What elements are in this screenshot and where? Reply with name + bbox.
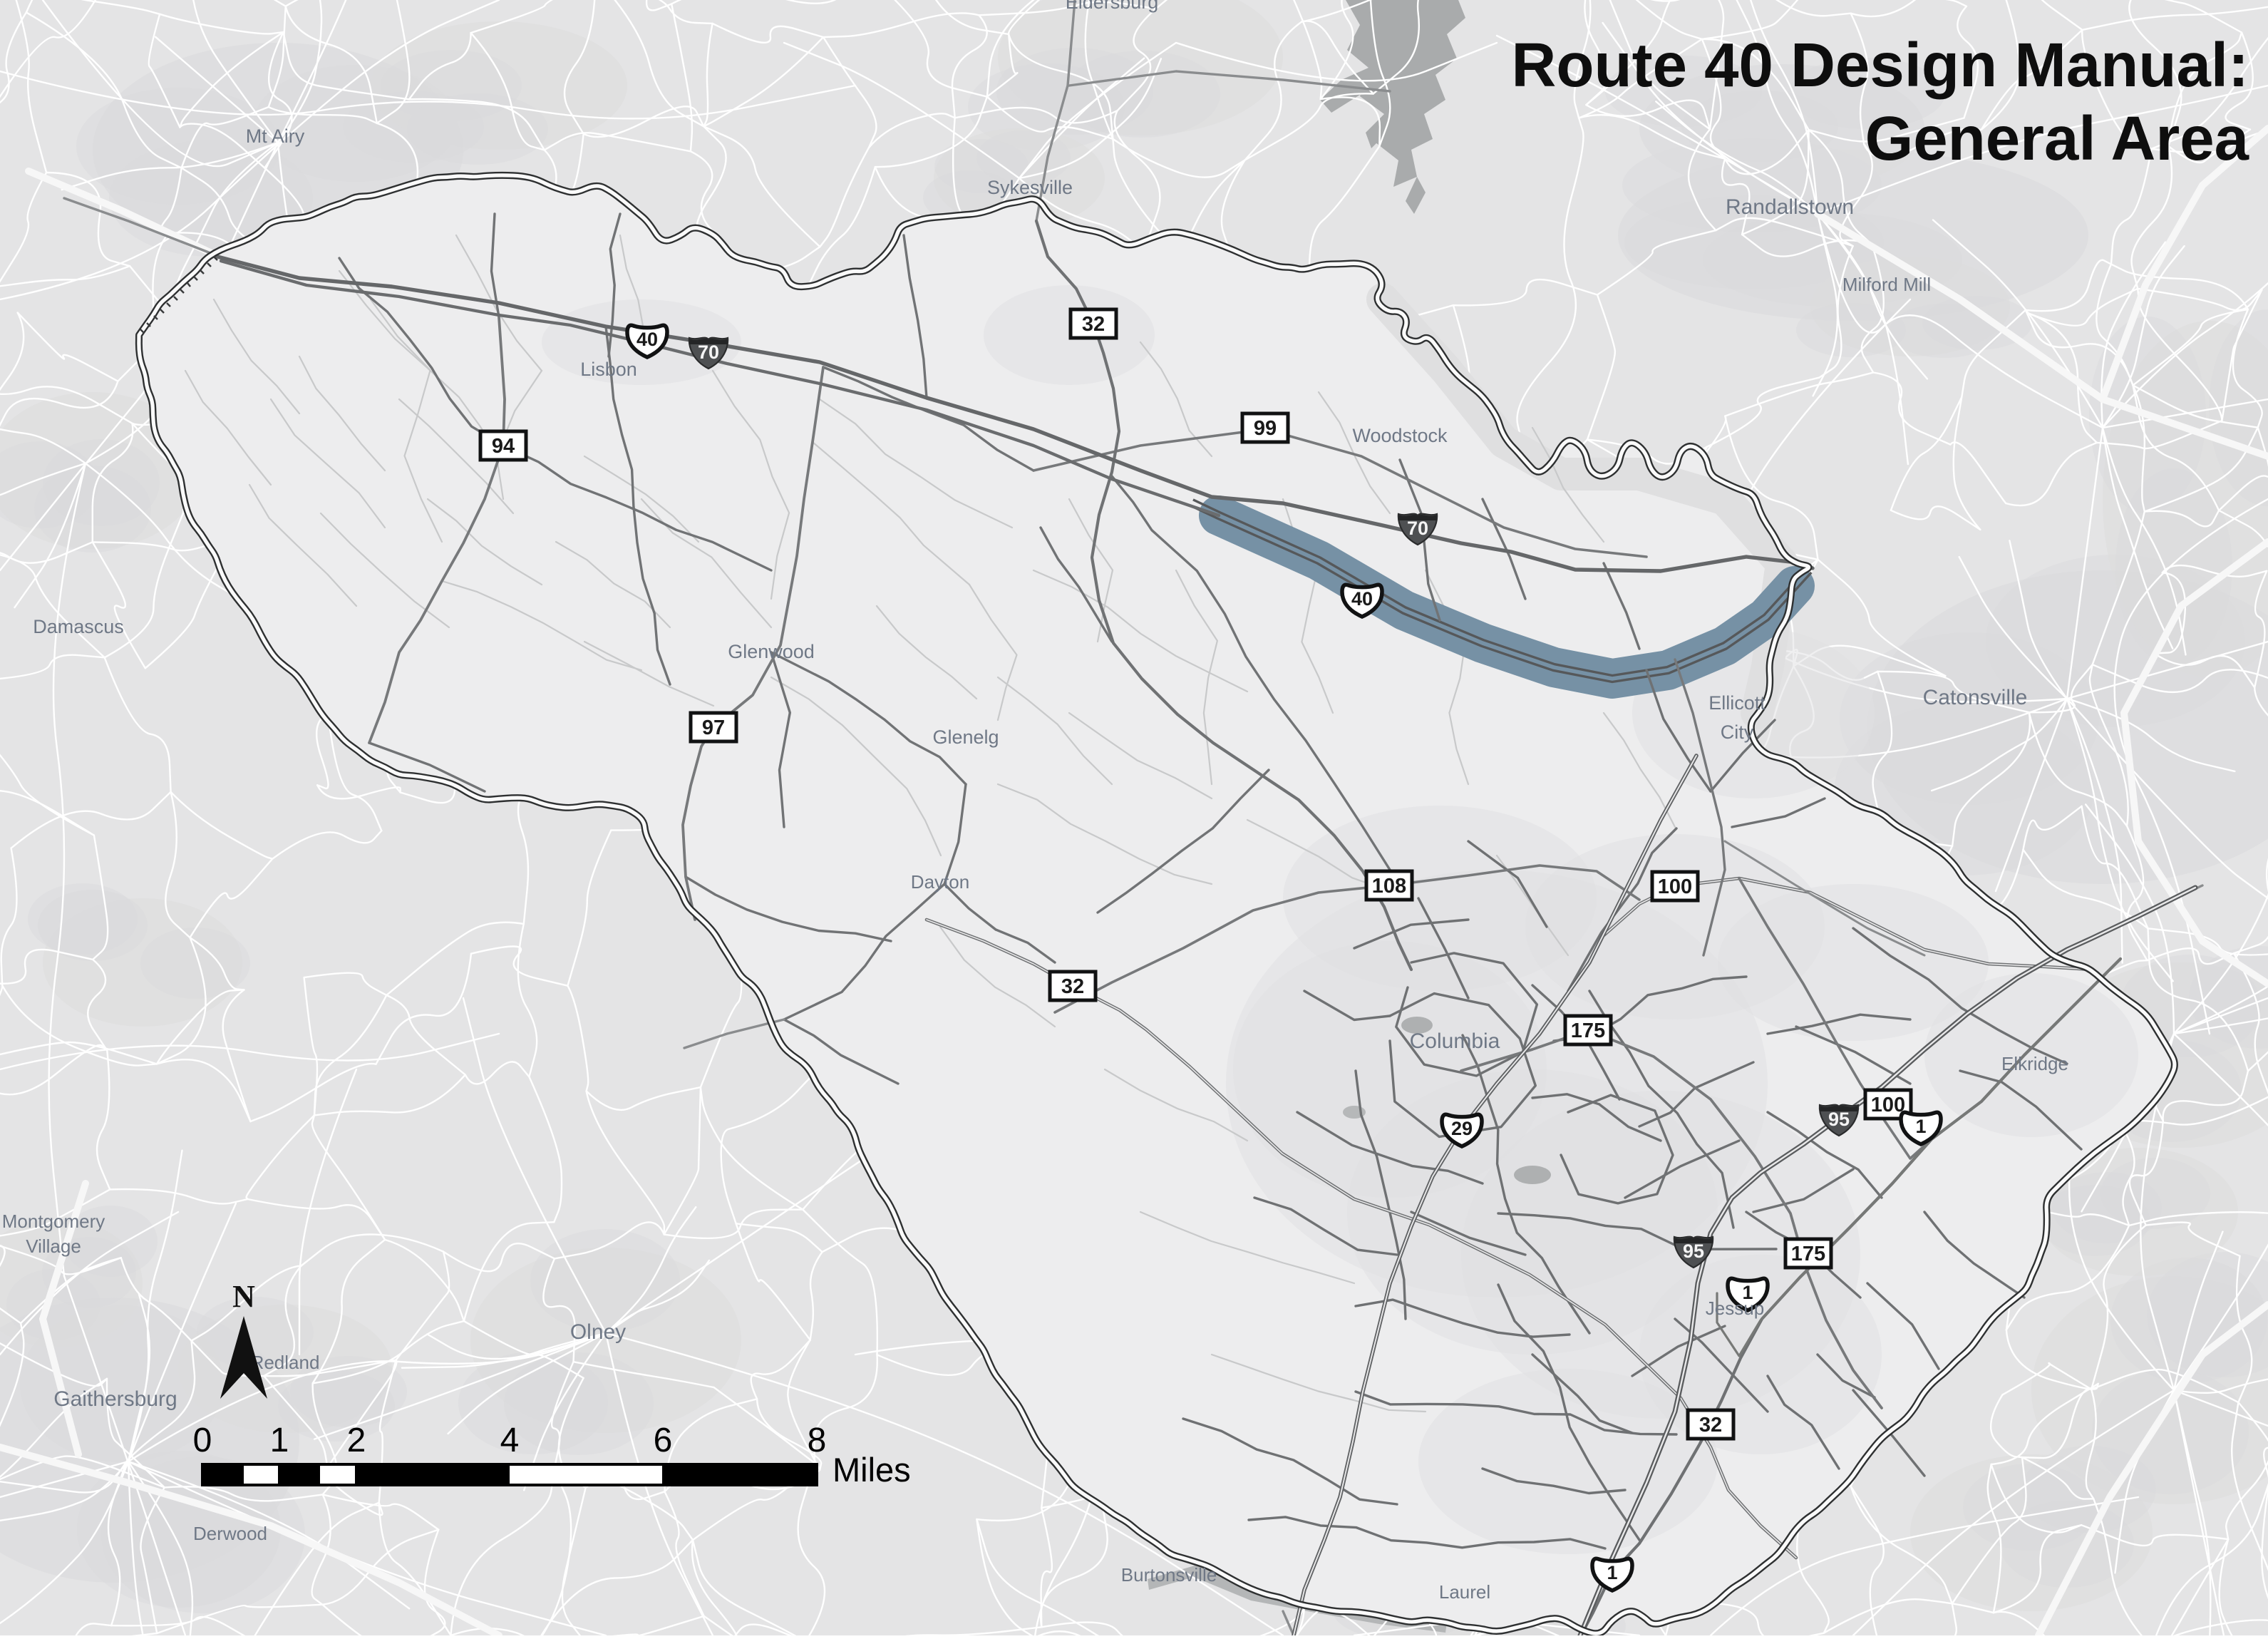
svg-text:Jessup: Jessup	[1706, 1298, 1764, 1319]
svg-text:32: 32	[1061, 975, 1084, 998]
svg-text:95: 95	[1828, 1109, 1850, 1130]
svg-text:40: 40	[636, 329, 658, 350]
svg-text:94: 94	[492, 435, 515, 458]
svg-text:40: 40	[1351, 588, 1373, 610]
svg-text:Derwood: Derwood	[193, 1523, 267, 1544]
svg-text:Redland: Redland	[251, 1352, 320, 1373]
svg-text:1: 1	[1607, 1562, 1617, 1583]
svg-text:Burtonsville: Burtonsville	[1121, 1564, 1217, 1586]
svg-text:Olney: Olney	[570, 1320, 626, 1344]
svg-text:Route 40 Design Manual:: Route 40 Design Manual:	[1512, 31, 2249, 100]
svg-text:175: 175	[1791, 1243, 1825, 1265]
svg-text:95: 95	[1683, 1240, 1704, 1262]
svg-text:4: 4	[500, 1422, 520, 1459]
svg-text:97: 97	[702, 716, 725, 739]
svg-text:32: 32	[1699, 1414, 1722, 1437]
svg-text:Randallstown: Randallstown	[1726, 195, 1854, 219]
svg-text:Laurel: Laurel	[1439, 1581, 1490, 1603]
svg-text:70: 70	[698, 341, 719, 363]
svg-text:N: N	[232, 1279, 255, 1314]
svg-text:Miles: Miles	[833, 1451, 911, 1489]
svg-text:Gaithersburg: Gaithersburg	[53, 1387, 177, 1411]
svg-text:70: 70	[1407, 518, 1428, 539]
svg-text:General Area: General Area	[1865, 104, 2249, 173]
svg-text:Sykesville: Sykesville	[987, 177, 1073, 198]
svg-text:6: 6	[654, 1422, 673, 1459]
svg-text:Woodstock: Woodstock	[1352, 425, 1448, 446]
svg-text:Dayton: Dayton	[911, 871, 969, 893]
svg-text:Elkridge: Elkridge	[2001, 1053, 2068, 1074]
svg-text:Milford Mill: Milford Mill	[1842, 274, 1931, 295]
svg-text:Eldersburg: Eldersburg	[1066, 0, 1159, 13]
svg-text:Ellicott: Ellicott	[1708, 692, 1766, 714]
svg-text:100: 100	[1871, 1094, 1905, 1116]
svg-text:29: 29	[1451, 1118, 1473, 1139]
svg-text:City: City	[1721, 721, 1754, 743]
svg-text:1: 1	[1915, 1116, 1926, 1137]
svg-text:108: 108	[1372, 875, 1406, 898]
svg-text:Columbia: Columbia	[1410, 1029, 1500, 1053]
svg-text:32: 32	[1082, 313, 1105, 336]
svg-text:99: 99	[1254, 417, 1277, 440]
svg-text:Glenelg: Glenelg	[932, 726, 999, 748]
svg-text:8: 8	[808, 1422, 827, 1459]
svg-text:1: 1	[270, 1422, 289, 1459]
svg-text:175: 175	[1571, 1019, 1605, 1042]
svg-text:Montgomery: Montgomery	[2, 1211, 105, 1232]
svg-text:Catonsville: Catonsville	[1923, 686, 2028, 709]
svg-text:100: 100	[1658, 875, 1692, 898]
svg-text:Lisbon: Lisbon	[580, 359, 637, 380]
svg-text:Glenwood: Glenwood	[728, 641, 815, 662]
svg-text:2: 2	[347, 1422, 366, 1459]
svg-text:Village: Village	[26, 1235, 81, 1257]
svg-text:Mt Airy: Mt Airy	[246, 125, 305, 147]
svg-text:Damascus: Damascus	[33, 616, 124, 637]
svg-text:0: 0	[193, 1422, 212, 1459]
